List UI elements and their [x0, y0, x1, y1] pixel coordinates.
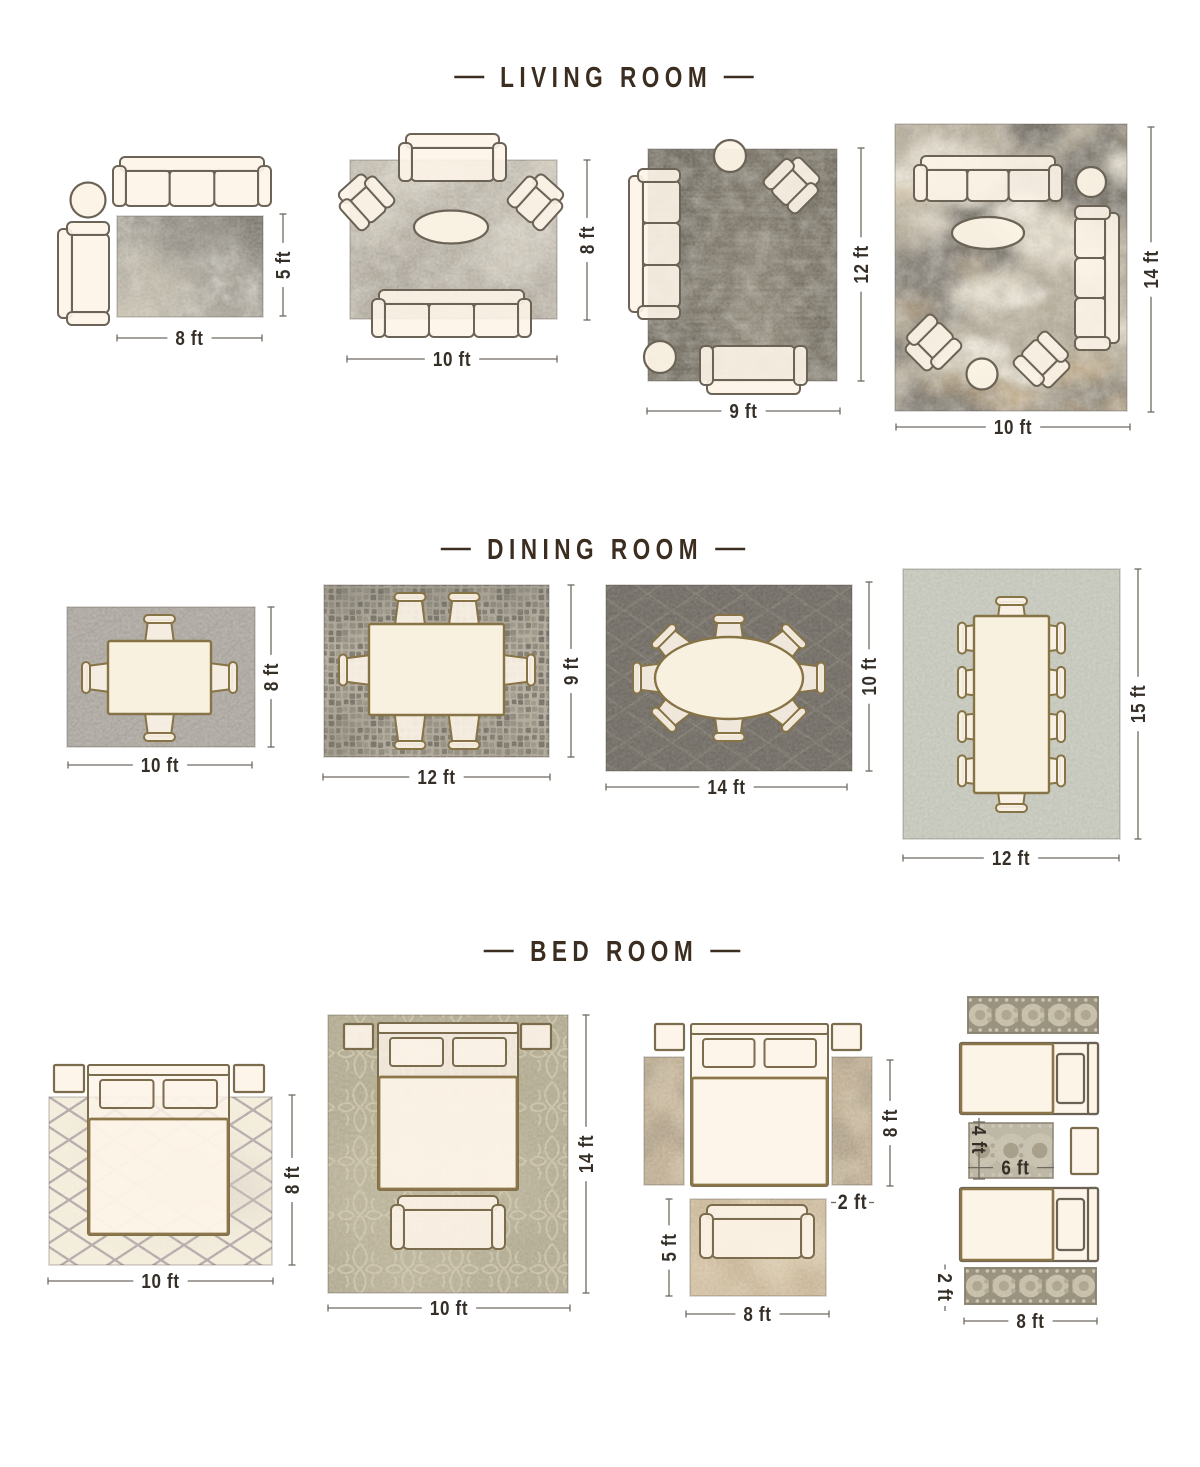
svg-text:12 ft: 12 ft — [992, 847, 1030, 870]
svg-text:DINING ROOM: DINING ROOM — [487, 532, 703, 565]
svg-text:14 ft: 14 ft — [575, 1135, 598, 1173]
svg-text:5 ft: 5 ft — [272, 251, 295, 279]
svg-text:4 ft: 4 ft — [968, 1126, 991, 1154]
svg-text:8 ft: 8 ft — [879, 1109, 902, 1137]
svg-text:9 ft: 9 ft — [560, 657, 583, 685]
svg-text:8 ft: 8 ft — [175, 327, 203, 350]
svg-text:8 ft: 8 ft — [743, 1303, 771, 1326]
svg-text:5 ft: 5 ft — [658, 1233, 681, 1261]
svg-text:14 ft: 14 ft — [707, 776, 745, 799]
svg-text:14 ft: 14 ft — [1140, 250, 1163, 288]
svg-text:10 ft: 10 ft — [858, 657, 881, 695]
svg-text:8 ft: 8 ft — [260, 663, 283, 691]
svg-text:10 ft: 10 ft — [430, 1297, 468, 1320]
svg-text:BED ROOM: BED ROOM — [530, 934, 698, 967]
svg-text:12 ft: 12 ft — [417, 766, 455, 789]
svg-text:6 ft: 6 ft — [1001, 1156, 1029, 1179]
svg-text:8 ft: 8 ft — [576, 226, 599, 254]
svg-text:2 ft: 2 ft — [838, 1191, 867, 1215]
svg-text:10 ft: 10 ft — [433, 348, 471, 371]
svg-text:15 ft: 15 ft — [1127, 685, 1150, 723]
svg-text:8 ft: 8 ft — [281, 1166, 304, 1194]
svg-text:10 ft: 10 ft — [141, 1270, 179, 1293]
svg-text:9 ft: 9 ft — [729, 400, 757, 423]
svg-text:10 ft: 10 ft — [141, 754, 179, 777]
svg-text:2 ft: 2 ft — [934, 1273, 957, 1301]
svg-text:12 ft: 12 ft — [850, 245, 873, 283]
svg-text:LIVING ROOM: LIVING ROOM — [500, 60, 712, 93]
svg-text:10 ft: 10 ft — [994, 416, 1032, 439]
svg-text:8 ft: 8 ft — [1016, 1310, 1044, 1333]
